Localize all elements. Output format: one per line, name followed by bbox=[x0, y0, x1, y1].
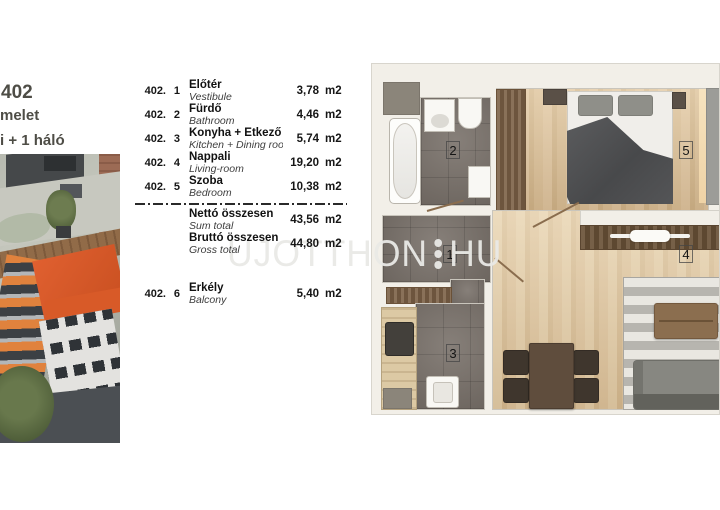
room-area: 19,20 bbox=[283, 151, 319, 175]
area-unit: m2 bbox=[319, 208, 346, 232]
room-name-en: Vestibule bbox=[189, 92, 283, 104]
total-row-net: Nettó összesenSum total 43,56 m2 bbox=[140, 208, 346, 232]
total-name-en: Gross total bbox=[189, 245, 283, 257]
nightstand bbox=[673, 93, 685, 108]
room-name-en: Bedroom bbox=[189, 188, 283, 200]
table-row: 402. 1 ElőtérVestibule 3,78 m2 bbox=[140, 79, 346, 103]
floor-label: melet bbox=[0, 107, 39, 124]
unit-number: 402. bbox=[140, 151, 166, 175]
room-index: 6 bbox=[166, 282, 180, 306]
table-row: 402. 5 SzobaBedroom 10,38 m2 bbox=[140, 175, 346, 199]
total-area: 43,56 bbox=[283, 208, 319, 232]
washer-drum bbox=[431, 114, 449, 128]
bathroom-mat bbox=[384, 83, 419, 114]
room-index: 4 bbox=[166, 151, 180, 175]
dining-table bbox=[529, 343, 574, 409]
area-unit: m2 bbox=[319, 103, 346, 127]
area-unit: m2 bbox=[319, 151, 346, 175]
unit-number: 402. bbox=[140, 103, 166, 127]
toilet bbox=[458, 98, 482, 129]
area-unit: m2 bbox=[319, 282, 346, 306]
kitchen-mat bbox=[384, 389, 411, 408]
room-index: 3 bbox=[166, 127, 180, 151]
sideboard-object bbox=[630, 230, 670, 242]
room-name-en: Bathroom bbox=[189, 116, 283, 128]
table-row: 402. 3 Konyha + ÉtkezőKitchen + Dining r… bbox=[140, 127, 346, 151]
total-name-en: Sum total bbox=[189, 221, 283, 233]
bathroom-sink bbox=[468, 166, 491, 198]
room-area: 3,78 bbox=[283, 79, 319, 103]
kitchen-sink bbox=[426, 376, 459, 408]
room-name-hu: Szoba bbox=[189, 175, 283, 188]
layout-label: i + 1 háló bbox=[0, 132, 65, 149]
pillow bbox=[619, 96, 652, 115]
sink-bowl bbox=[433, 382, 453, 403]
unit-number: 402. bbox=[140, 79, 166, 103]
sofa-back-cushion bbox=[634, 394, 720, 409]
dining-chair bbox=[574, 351, 598, 374]
balcony-row: 402. 6 ErkélyBalcony 5,40 m2 bbox=[140, 282, 346, 306]
room-name-hu: Konyha + Étkező bbox=[189, 127, 283, 140]
room-name-en: Balcony bbox=[189, 295, 283, 307]
nightstand bbox=[544, 90, 566, 104]
room-index: 1 bbox=[166, 79, 180, 103]
total-row-gross: Bruttó összesenGross total 44,80 m2 bbox=[140, 232, 346, 256]
dining-chair bbox=[574, 379, 598, 402]
plant-pot bbox=[56, 226, 71, 238]
room-label-bathroom: 2 bbox=[446, 141, 460, 159]
bathtub bbox=[389, 118, 421, 204]
room-index: 5 bbox=[166, 175, 180, 199]
apartment-number: 402 bbox=[1, 82, 33, 104]
wardrobe bbox=[497, 90, 525, 220]
terrace-plant bbox=[46, 190, 76, 230]
room-area: 10,38 bbox=[283, 175, 319, 199]
unit-number: 402. bbox=[140, 282, 166, 306]
room-label-bedroom: 5 bbox=[679, 141, 693, 159]
sofa bbox=[634, 361, 720, 409]
room-area: 4,46 bbox=[283, 103, 319, 127]
room-index: 2 bbox=[166, 103, 180, 127]
dash-dot-separator bbox=[135, 203, 347, 205]
pillow bbox=[579, 96, 612, 115]
coffee-table-detail bbox=[659, 320, 713, 322]
unit-number: 402. bbox=[140, 175, 166, 199]
cooktop bbox=[386, 323, 413, 355]
dining-chair bbox=[504, 379, 528, 402]
bathtub-basin bbox=[393, 123, 417, 199]
room-area: 5,40 bbox=[283, 282, 319, 306]
room-name-en: Kitchen + Dining room bbox=[189, 140, 283, 152]
coffee-table bbox=[654, 303, 718, 339]
watermark-text-right: HU bbox=[449, 233, 502, 275]
total-name-hu: Nettó összesen bbox=[189, 208, 283, 221]
total-name-hu: Bruttó összesen bbox=[189, 232, 283, 245]
room-name-hu: Előtér bbox=[189, 79, 283, 92]
hall-kitchen-opening bbox=[451, 280, 484, 306]
building-photo bbox=[0, 154, 120, 443]
room-name-hu: Nappali bbox=[189, 151, 283, 164]
area-unit: m2 bbox=[319, 175, 346, 199]
area-unit: m2 bbox=[319, 232, 346, 256]
building-roof-box bbox=[44, 156, 76, 171]
unit-number: 402. bbox=[140, 127, 166, 151]
area-unit: m2 bbox=[319, 127, 346, 151]
watermark-dots-icon bbox=[435, 239, 443, 269]
entrance-door bbox=[387, 288, 451, 303]
dining-chair bbox=[504, 351, 528, 374]
room-table: 402. 1 ElőtérVestibule 3,78 m2 402. 2 Fü… bbox=[140, 79, 346, 306]
total-area: 44,80 bbox=[283, 232, 319, 256]
table-row: 402. 2 FürdőBathroom 4,46 m2 bbox=[140, 103, 346, 127]
area-unit: m2 bbox=[319, 79, 346, 103]
washing-machine bbox=[424, 99, 455, 132]
room-name-hu: Erkély bbox=[189, 282, 283, 295]
room-name-hu: Fürdő bbox=[189, 103, 283, 116]
balcony-exterior-strip bbox=[707, 89, 720, 204]
room-label-living: 4 bbox=[679, 245, 693, 263]
room-label-kitchen: 3 bbox=[446, 344, 460, 362]
window-light-strip bbox=[699, 89, 707, 203]
room-area: 5,74 bbox=[283, 127, 319, 151]
room-name-en: Living-room bbox=[189, 164, 283, 176]
table-row: 402. 4 NappaliLiving-room 19,20 m2 bbox=[140, 151, 346, 175]
